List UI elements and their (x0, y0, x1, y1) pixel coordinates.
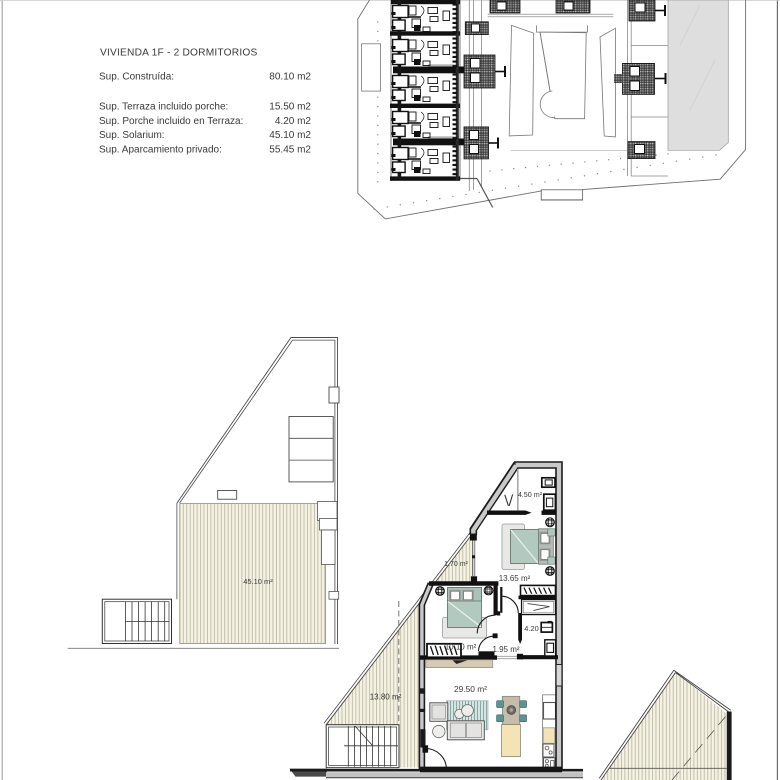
svg-text:1.70 m²: 1.70 m² (444, 561, 468, 568)
svg-text:55.45 m2: 55.45 m2 (269, 144, 311, 155)
svg-text:4.20: 4.20 (524, 624, 538, 633)
svg-text:80.10 m2: 80.10 m2 (269, 72, 311, 83)
svg-text:45.10 m2: 45.10 m2 (269, 130, 311, 141)
svg-text:Sup. Porche incluido en Terraz: Sup. Porche incluido en Terraza: (99, 116, 243, 127)
svg-text:VIVIENDA 1F - 2 DORMITORIOS: VIVIENDA 1F - 2 DORMITORIOS (100, 48, 258, 59)
svg-text:10.10 m²: 10.10 m² (445, 643, 477, 652)
svg-text:4.50 m²: 4.50 m² (518, 490, 543, 499)
svg-text:Sup. Terraza incluido porche:: Sup. Terraza incluido porche: (99, 102, 228, 113)
svg-text:45.10 m²: 45.10 m² (243, 577, 273, 586)
svg-text:Sup. Solarium:: Sup. Solarium: (99, 130, 165, 141)
svg-text:4.20 m2: 4.20 m2 (275, 116, 312, 127)
svg-text:Sup. Construída:: Sup. Construída: (99, 72, 174, 83)
svg-text:13.65 m²: 13.65 m² (499, 574, 531, 583)
svg-text:29.50 m²: 29.50 m² (454, 684, 487, 694)
svg-text:15.50 m2: 15.50 m2 (269, 102, 311, 113)
svg-text:Sup. Aparcamiento privado:: Sup. Aparcamiento privado: (99, 144, 222, 155)
svg-text:13.80 m²: 13.80 m² (370, 693, 402, 702)
svg-text:1.95 m²: 1.95 m² (492, 645, 519, 654)
